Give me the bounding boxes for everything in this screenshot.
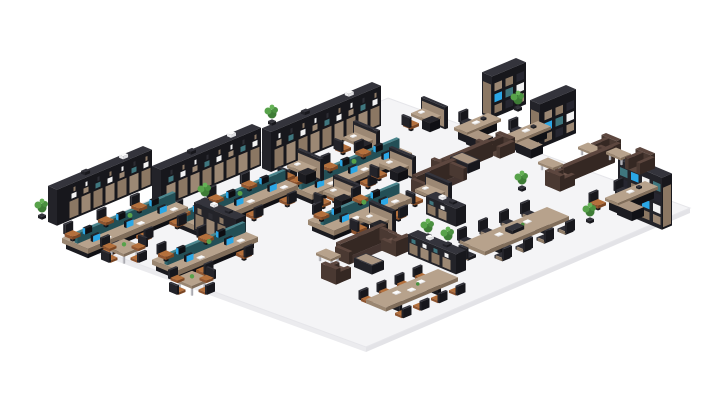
office-floorplan-render: [0, 0, 712, 400]
potted-plant: [265, 105, 279, 126]
potted-plant: [35, 199, 49, 220]
isometric-scene-canvas: [0, 0, 712, 400]
